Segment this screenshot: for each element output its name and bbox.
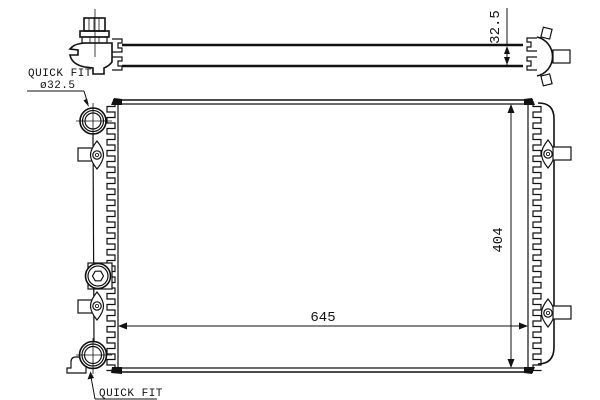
top-view-right-fitting bbox=[527, 27, 570, 86]
height-dimension-text: 404 bbox=[491, 227, 507, 252]
quick-fit-top-text: QUICK FIT bbox=[28, 68, 92, 80]
dimension-core-width: 645 bbox=[118, 310, 528, 330]
filler-cap bbox=[80, 18, 109, 43]
quick-fit-port-bottom bbox=[67, 338, 112, 374]
quick-fit-top-diameter-text: ø32.5 bbox=[40, 80, 76, 92]
dimension-core-thickness: 32.5 bbox=[488, 8, 510, 65]
leader-arrow bbox=[84, 99, 90, 108]
mount-bracket-right-top bbox=[542, 140, 572, 168]
arrow-up bbox=[508, 104, 515, 113]
mount-bracket-left-top bbox=[78, 141, 104, 169]
right-seal-strip bbox=[533, 101, 541, 371]
label-quick-fit-top: QUICK FIT ø32.5 bbox=[27, 68, 92, 107]
arrow-right bbox=[519, 323, 528, 330]
left-seal-strip bbox=[107, 101, 115, 371]
thickness-dimension-text: 32.5 bbox=[488, 10, 504, 44]
drain-plug bbox=[86, 263, 113, 289]
dimension-core-height: 404 bbox=[491, 104, 515, 368]
top-view-left-clips bbox=[112, 39, 122, 70]
arrow-up bbox=[504, 46, 510, 54]
mount-bracket-right-bottom bbox=[542, 299, 572, 327]
technical-drawing-canvas: 32.5 bbox=[0, 0, 600, 400]
arrow-left bbox=[118, 323, 127, 330]
corner-marks bbox=[111, 98, 535, 374]
label-quick-fit-bottom: QUICK FIT bbox=[88, 372, 163, 400]
arrow-down bbox=[504, 57, 510, 65]
mount-bracket-left-bottom bbox=[78, 292, 104, 320]
quick-fit-bottom-text: QUICK FIT bbox=[99, 388, 163, 400]
width-dimension-text: 645 bbox=[310, 310, 335, 326]
outlet-pipe-stub bbox=[553, 50, 570, 63]
radiator-drawing: 32.5 bbox=[0, 0, 600, 400]
arrow-down bbox=[508, 359, 515, 368]
